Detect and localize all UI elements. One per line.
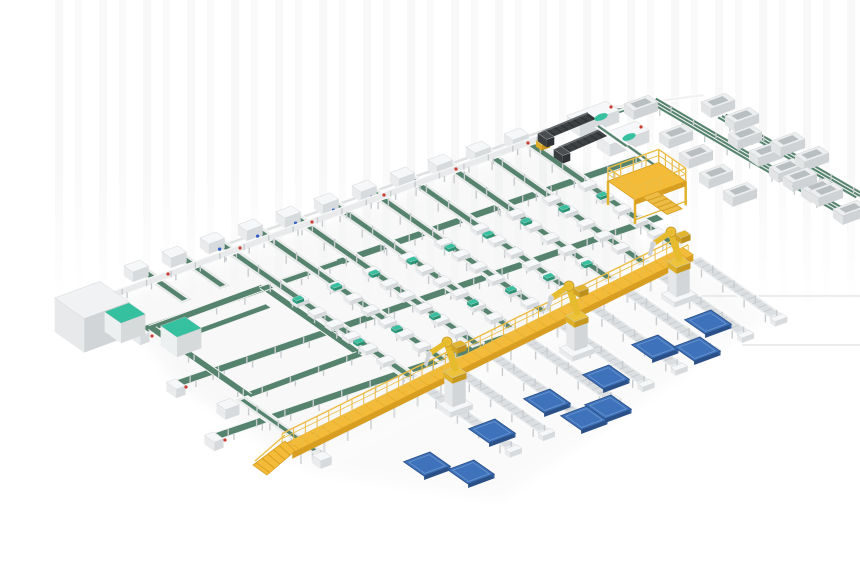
- tote-bin: [624, 95, 658, 120]
- scene-canvas: Isometric 3D render of an automated parc…: [0, 0, 860, 580]
- factory-3d-render: Isometric 3D render of an automated parc…: [0, 0, 860, 580]
- tote-bin: [699, 164, 733, 189]
- tote-bin: [659, 124, 693, 149]
- tote-bin: [679, 144, 713, 169]
- tote-bin: [723, 182, 757, 207]
- platform-stairs: [643, 192, 683, 215]
